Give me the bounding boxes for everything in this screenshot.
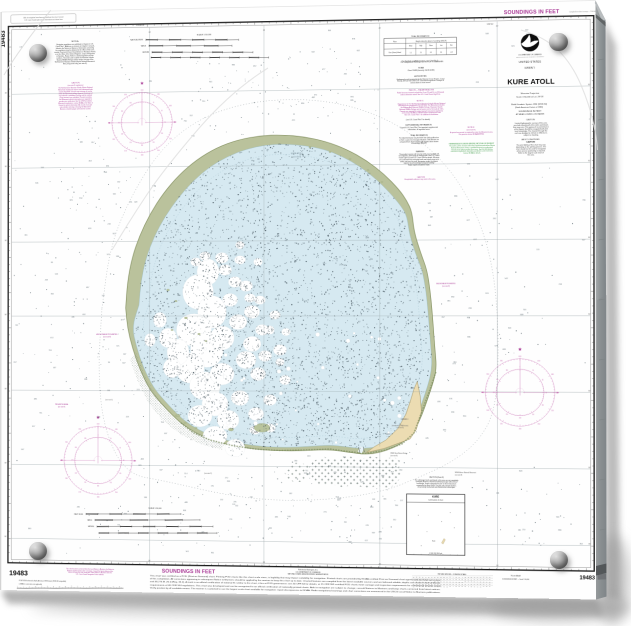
svg-text:120: 120 (551, 410, 554, 412)
svg-text:SUPPLEMENTAL INFORMATION: SUPPLEMENTAL INFORMATION (405, 124, 432, 127)
svg-text:270: 270 (108, 122, 111, 124)
svg-text:UNITED STATES: UNITED STATES (519, 60, 541, 63)
svg-text:300: 300 (486, 374, 489, 376)
svg-text:Sand: Sand (254, 431, 258, 433)
svg-text:SOUNDINGS IN FEET: SOUNDINGS IN FEET (162, 569, 215, 576)
svg-text:270: 270 (493, 392, 496, 394)
svg-text:090: 090 (174, 122, 177, 124)
svg-text:48: 48 (374, 350, 376, 352)
svg-text:300: 300 (112, 106, 115, 108)
svg-text:000: 000 (141, 90, 144, 92)
svg-text:39: 39 (332, 226, 334, 228)
svg-text:10: 10 (175, 284, 177, 286)
svg-text:50: 50 (188, 190, 190, 192)
svg-text:180: 180 (141, 145, 143, 147)
svg-text:000: 000 (519, 356, 522, 358)
svg-text:METERS: METERS (88, 526, 94, 528)
svg-text:18: 18 (327, 168, 329, 170)
svg-text:67: 67 (220, 403, 222, 405)
svg-text:69: 69 (243, 441, 245, 443)
svg-text:of soundings (MLLW).: of soundings (MLLW). (411, 143, 427, 145)
svg-text:150: 150 (115, 492, 118, 494)
svg-text:330: 330 (129, 102, 131, 104)
svg-text:25: 25 (284, 405, 286, 407)
svg-text:17: 17 (219, 206, 221, 208)
svg-text:NOTE S: NOTE S (417, 100, 425, 102)
svg-text:66: 66 (206, 371, 208, 373)
svg-text:20: 20 (320, 406, 322, 408)
svg-text:57: 57 (224, 174, 226, 176)
svg-text:63: 63 (341, 175, 343, 177)
svg-text:66: 66 (164, 358, 166, 360)
svg-text:38: 38 (227, 342, 229, 344)
svg-text:240: 240 (112, 139, 115, 141)
svg-text:150: 150 (152, 142, 154, 144)
svg-text:NOAA: NOAA (418, 66, 424, 69)
svg-text:180: 180 (141, 155, 144, 157)
svg-text:150: 150 (532, 414, 535, 416)
svg-text:240: 240 (496, 405, 499, 407)
svg-text:KURE: KURE (432, 496, 439, 498)
svg-text:1.5: 1.5 (420, 52, 422, 54)
svg-text:19483: 19483 (9, 570, 28, 577)
svg-text:49: 49 (208, 401, 210, 403)
svg-text:39: 39 (202, 348, 204, 350)
svg-text:0 1000 2000 3000 y: 0 1000 2000 3000 yds (429, 553, 442, 555)
svg-text:TIDAL INFORMATION: TIDAL INFORMATION (410, 134, 428, 137)
svg-text:AUTHORITIES: AUTHORITIES (414, 75, 427, 78)
svg-text:28: 28 (278, 144, 280, 146)
svg-text:4: 4 (189, 229, 190, 231)
svg-text:56: 56 (348, 284, 350, 286)
svg-text:0.5: 0.5 (430, 52, 432, 54)
svg-text:SOUNDINGS IN FEET: SOUNDINGS IN FEET (519, 111, 543, 113)
svg-text:17: 17 (410, 286, 412, 288)
svg-text:150: 150 (110, 482, 112, 484)
svg-text:330: 330 (124, 94, 127, 96)
svg-text:18: 18 (154, 331, 156, 333)
svg-text:Mercator Projection: Mercator Projection (521, 92, 539, 95)
svg-text:Kure: Kure (432, 541, 435, 543)
svg-text:27: 27 (211, 407, 213, 409)
svg-text:(North American Datum of 1983): (North American Datum of 1983) (515, 106, 543, 109)
svg-text:62: 62 (358, 321, 360, 323)
svg-text:49: 49 (336, 360, 338, 362)
svg-text:SOUNDINGS IN FEET: SOUNDINGS IN FEET (504, 9, 560, 16)
svg-text:24: 24 (236, 244, 238, 246)
svg-text:330: 330 (506, 370, 509, 372)
svg-text:330: 330 (500, 361, 503, 363)
svg-text:53: 53 (374, 182, 376, 184)
svg-text:300: 300 (496, 379, 499, 381)
svg-text:210: 210 (500, 423, 503, 425)
svg-text:CAUTION: CAUTION (526, 118, 535, 121)
svg-text:CAUTION: CAUTION (417, 176, 426, 179)
svg-text:SCALE 1:50,000: SCALE 1:50,000 (148, 507, 161, 510)
svg-text:240: 240 (486, 410, 489, 412)
svg-text:210: 210 (79, 491, 82, 493)
svg-text:060: 060 (169, 105, 172, 107)
svg-text:090: 090 (133, 460, 136, 462)
svg-text:59: 59 (411, 312, 413, 314)
svg-text:RACON — RADAR BEACONS: RACON — RADAR BEACONS (409, 88, 435, 91)
svg-text:060: 060 (551, 374, 554, 376)
svg-text:120: 120 (169, 138, 172, 140)
svg-text:270: 270 (71, 460, 73, 462)
svg-text:subject to shoaling.: subject to shoaling. (523, 133, 539, 136)
svg-text:CAUTION: CAUTION (71, 81, 80, 84)
svg-text:High: High (420, 45, 423, 47)
svg-text:300: 300 (121, 111, 123, 113)
svg-text:AT MEAN LOWER LOW WATER: AT MEAN LOWER LOW WATER (516, 113, 545, 116)
svg-text:5: 5 (310, 269, 311, 271)
svg-text:330: 330 (79, 428, 82, 430)
svg-text:HAWAIʻI: HAWAIʻI (525, 66, 536, 69)
svg-text:34: 34 (159, 363, 161, 365)
svg-text:45: 45 (388, 336, 390, 338)
svg-text:3: 3 (381, 260, 382, 262)
svg-text:240: 240 (121, 134, 123, 136)
svg-text:52: 52 (253, 285, 255, 287)
svg-text:030: 030 (537, 361, 540, 363)
svg-text:57: 57 (254, 236, 256, 238)
svg-text:NOTE E: NOTE E (468, 127, 476, 129)
svg-text:36: 36 (299, 400, 301, 402)
svg-text:18: 18 (394, 423, 396, 425)
svg-text:270: 270 (118, 122, 120, 124)
svg-text:21: 21 (229, 211, 231, 213)
svg-text:NOTE A: NOTE A (71, 40, 79, 43)
svg-text:180: 180 (519, 428, 522, 430)
svg-text:51: 51 (371, 259, 373, 261)
svg-text:180: 180 (97, 496, 100, 498)
svg-text:19483: 19483 (1, 30, 7, 48)
svg-text:210: 210 (124, 150, 127, 152)
svg-text:210: 210 (506, 414, 509, 416)
svg-text:090: 090 (556, 392, 559, 394)
svg-text:13: 13 (366, 308, 368, 310)
svg-text:178°25'W: 178°25'W (136, 25, 145, 27)
svg-text:SOUNDINGS IN FEET — Scale 1:50: SOUNDINGS IN FEET — Scale 1:50,000 (502, 578, 529, 580)
svg-text:150: 150 (157, 150, 160, 152)
svg-text:Kure Atoll: Kure Atoll (511, 574, 521, 577)
svg-text:8: 8 (388, 391, 389, 393)
svg-text:060: 060 (128, 442, 131, 444)
svg-text:9: 9 (195, 323, 196, 325)
svg-text:67: 67 (369, 283, 371, 285)
svg-text:178°15': 178°15' (487, 24, 494, 26)
svg-text:18: 18 (209, 291, 211, 293)
svg-text:CAUTION: CAUTION (526, 140, 536, 143)
svg-text:120: 120 (128, 479, 131, 481)
svg-text:52: 52 (247, 361, 249, 363)
svg-text:28: 28 (250, 443, 252, 445)
svg-text:240: 240 (65, 478, 68, 480)
svg-text:180: 180 (519, 417, 522, 419)
svg-text:210: 210 (129, 142, 131, 144)
svg-text:67: 67 (283, 172, 285, 174)
svg-text:SCALE 1:50,000: SCALE 1:50,000 (197, 33, 212, 36)
svg-text:330: 330 (84, 438, 86, 440)
svg-text:3: 3 (294, 283, 295, 285)
svg-text:3: 3 (302, 173, 303, 175)
svg-text:Scale 1:50,000 at Lat. 28°25': Scale 1:50,000 at Lat. 28°25' (516, 95, 544, 98)
svg-text:GREEN I: GREEN I (401, 419, 409, 421)
svg-text:52: 52 (368, 173, 370, 175)
svg-text:240: 240 (75, 473, 77, 475)
svg-text:150: 150 (537, 424, 540, 426)
svg-text:Place: Place (393, 41, 397, 43)
svg-text:23: 23 (364, 414, 366, 416)
svg-text:Mean: Mean (429, 45, 433, 47)
svg-text:32: 32 (295, 289, 297, 291)
svg-text:METERS: METERS (143, 52, 149, 54)
svg-text:19483: 19483 (580, 575, 596, 581)
svg-text:Mean: Mean (409, 46, 413, 48)
svg-text:52: 52 (402, 348, 404, 350)
svg-text:030: 030 (157, 94, 160, 96)
svg-text:210: 210 (84, 482, 86, 484)
svg-text:120: 120 (119, 473, 121, 475)
svg-text:7: 7 (159, 388, 160, 390)
svg-text:270: 270 (60, 460, 63, 462)
svg-text:21: 21 (343, 429, 345, 431)
svg-text:Low: Low (440, 45, 443, 47)
svg-text:WARNING: WARNING (416, 150, 425, 153)
svg-text:KURE ATOLL: KURE ATOLL (507, 78, 554, 86)
svg-text:030: 030 (115, 429, 118, 431)
svg-text:-0.4: -0.4 (450, 51, 453, 53)
svg-text:4: 4 (315, 389, 316, 391)
svg-text:180: 180 (97, 486, 99, 488)
svg-text:000: 000 (97, 424, 100, 426)
svg-text:TIDAL INFORMATION: TIDAL INFORMATION (411, 34, 430, 37)
svg-text:300: 300 (65, 442, 68, 444)
svg-text:38: 38 (351, 303, 353, 305)
svg-text:8: 8 (363, 311, 364, 313)
svg-text:300: 300 (75, 447, 77, 449)
svg-text:9: 9 (349, 440, 350, 442)
svg-text:120: 120 (161, 133, 163, 135)
svg-text:41: 41 (169, 265, 171, 267)
svg-text:39: 39 (350, 220, 352, 222)
svg-text:120: 120 (542, 405, 545, 407)
svg-text:0.0: 0.0 (440, 52, 442, 54)
svg-text:270: 270 (481, 392, 484, 394)
